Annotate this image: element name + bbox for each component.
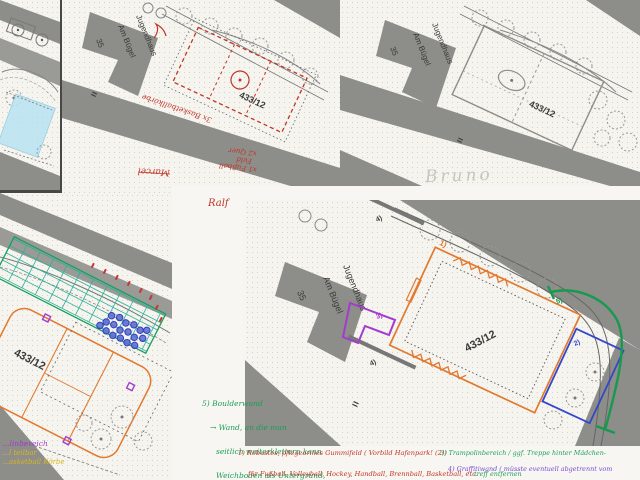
parcel-label: 433/12 [238,90,267,111]
corner-note-yellow-1: …l teilbar [2,449,37,457]
note-graffitiwand: 4) Graffitiwand ( müsste eventuell abget… [448,452,623,480]
marker-4-bottom: 4) [369,359,378,368]
plan-marcel-drawing: Jugendhaus Am Bügel 35 = 433/12 3x Baske… [62,0,340,193]
plan-fragment-drawing [0,0,60,190]
plan-marcel: Jugendhaus Am Bügel 35 = 433/12 3x Baske… [62,0,340,193]
plan-coloured-drawing: 433/12 [0,193,172,480]
author-bruno: Bruno [425,165,493,187]
corner-note-purple: …linbereich [2,439,48,448]
marker-2: 2) [573,339,582,348]
plan-bruno: Jugendhaus Am Bügel 35 = 433/12 [340,0,640,186]
marker-1: 1) [438,238,449,249]
red-mark [154,24,166,38]
equals-symbol: = [350,398,361,412]
plan-bruno-drawing: Jugendhaus Am Bügel 35 = 433/12 [340,0,640,186]
cyan-highlight-area [0,94,55,157]
marker-3: 3) [375,312,383,321]
road-corner [274,0,340,38]
parcel-label: 433/12 [528,99,557,120]
plan-fragment-top-left [0,0,60,190]
parcel-label: 433/12 [463,328,498,354]
concept-page-ralf: Ralf Jugendhaus Am Bügel 35 = 4) 4) [172,186,640,480]
plan-coloured-bottom-left: 433/12 …linbereich …l teilbar …asketball… [0,193,172,480]
author-ralf: Ralf [208,198,229,209]
parcel-label: 433/12 [12,347,47,373]
author-marcel: Marcel [137,165,171,177]
marker-4-top: 4) [375,215,384,224]
corner-note-yellow-2: …asketball Körbe [2,458,65,466]
